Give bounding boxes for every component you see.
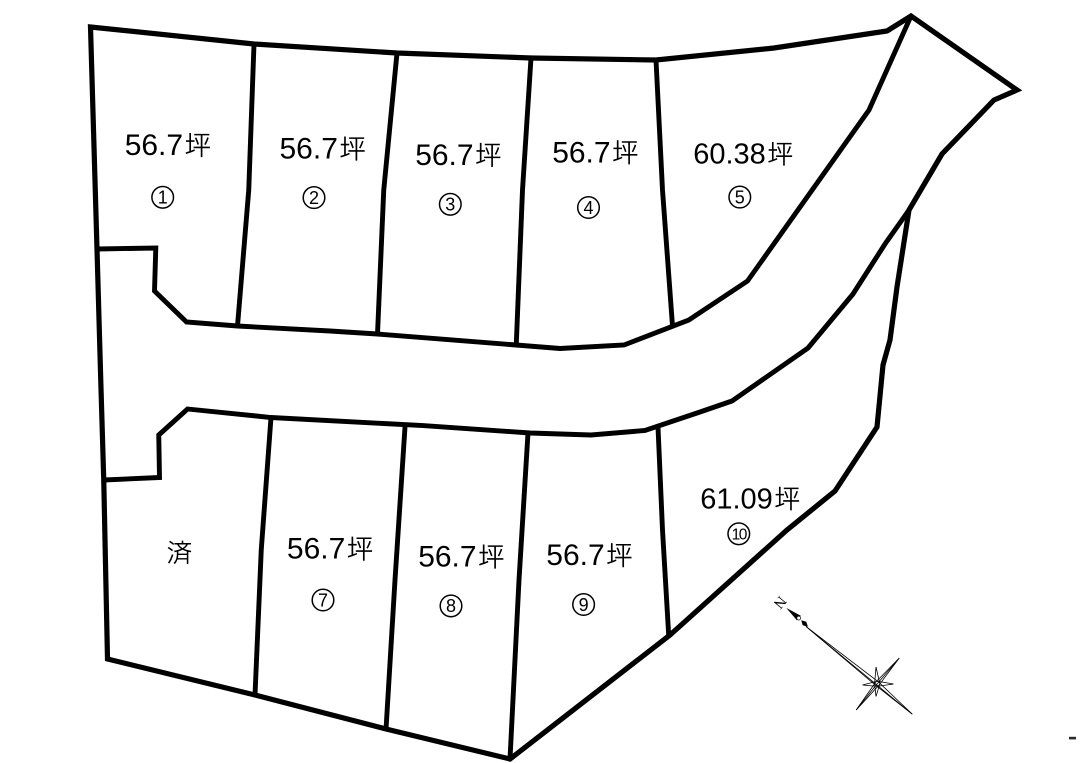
svg-text:8: 8 xyxy=(446,596,456,616)
svg-text:56.7: 56.7 xyxy=(552,136,610,169)
svg-text:4: 4 xyxy=(583,198,593,218)
svg-text:56.7: 56.7 xyxy=(546,539,604,572)
svg-text:7: 7 xyxy=(318,590,328,610)
svg-text:56.7: 56.7 xyxy=(125,129,183,162)
svg-text:56.7: 56.7 xyxy=(418,541,476,574)
svg-text:3: 3 xyxy=(445,195,455,215)
svg-text:10: 10 xyxy=(732,526,748,543)
svg-text:61.09: 61.09 xyxy=(700,483,773,515)
svg-text:1: 1 xyxy=(158,188,168,208)
svg-text:9: 9 xyxy=(579,595,589,615)
svg-text:56.7: 56.7 xyxy=(287,533,345,566)
svg-text:56.7: 56.7 xyxy=(280,133,338,166)
svg-text:60.38: 60.38 xyxy=(693,139,766,171)
svg-text:5: 5 xyxy=(735,187,745,207)
svg-text:2: 2 xyxy=(309,188,319,208)
svg-text:56.7: 56.7 xyxy=(415,139,473,172)
